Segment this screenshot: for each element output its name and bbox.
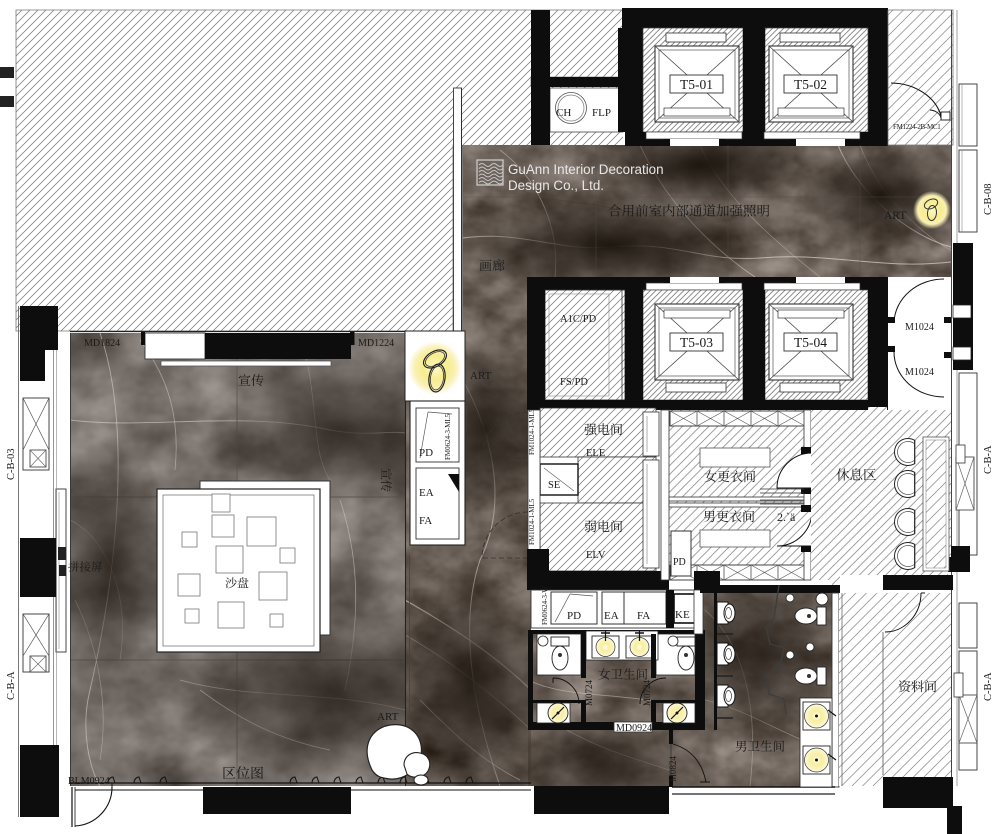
svg-text:ART: ART (377, 711, 399, 723)
svg-text:Design Co., Ltd.: Design Co., Ltd. (508, 178, 604, 193)
svg-text:M1024: M1024 (905, 367, 934, 378)
svg-text:ART: ART (470, 370, 492, 382)
svg-text:KE: KE (675, 609, 690, 621)
svg-text:MD0924: MD0924 (616, 723, 652, 734)
svg-text:C-B-08: C-B-08 (983, 184, 994, 216)
svg-text:GuAnn Interior Decoration: GuAnn Interior Decoration (508, 162, 664, 177)
svg-text:FM1024-1-ML5: FM1024-1-ML5 (528, 408, 536, 455)
svg-text:M1024: M1024 (905, 322, 934, 333)
svg-text:T5-04: T5-04 (794, 335, 827, 350)
svg-text:MD1224: MD1224 (358, 338, 394, 349)
svg-text:T5-03: T5-03 (680, 335, 713, 350)
svg-text:A1C/PD: A1C/PD (560, 314, 597, 325)
svg-text:EA: EA (419, 487, 434, 499)
svg-text:EA: EA (604, 610, 619, 622)
svg-text:C-B-A: C-B-A (983, 672, 994, 701)
svg-text:FA: FA (419, 515, 432, 527)
svg-text:M0824: M0824 (668, 755, 678, 782)
svg-text:T5-02: T5-02 (794, 77, 827, 92)
svg-text:T5-01: T5-01 (680, 77, 713, 92)
svg-text:FS/PD: FS/PD (560, 377, 588, 388)
svg-text:SE: SE (548, 480, 560, 491)
svg-text:PD: PD (567, 610, 581, 622)
svg-text:M0724: M0724 (584, 679, 594, 706)
svg-text:CH: CH (556, 107, 571, 119)
svg-text:C-B-03: C-B-03 (6, 449, 17, 481)
svg-text:PD: PD (419, 447, 433, 459)
svg-text:FLP: FLP (592, 107, 611, 119)
svg-text:MD1824: MD1824 (84, 338, 120, 349)
svg-text:ART: ART (884, 210, 906, 222)
svg-text:PD: PD (673, 557, 686, 568)
svg-text:C-B-A: C-B-A (983, 445, 994, 474)
svg-text:FM0624-3-ML5: FM0624-3-ML5 (444, 413, 452, 460)
svg-text:FM0624-3-W: FM0624-3-W (541, 586, 549, 625)
svg-text:C-B-A: C-B-A (6, 671, 17, 700)
svg-text:FM1024-1-ML5: FM1024-1-ML5 (528, 498, 536, 545)
svg-text:ELV: ELV (586, 550, 606, 561)
svg-text:FA: FA (637, 610, 650, 622)
svg-text:ELE: ELE (586, 448, 605, 459)
svg-text:BLM0924: BLM0924 (68, 776, 110, 787)
svg-text:2.`ä: 2.`ä (777, 510, 796, 524)
svg-text:M0724: M0724 (642, 679, 652, 706)
svg-text:FM1224-2B-MC1: FM1224-2B-MC1 (893, 123, 941, 131)
